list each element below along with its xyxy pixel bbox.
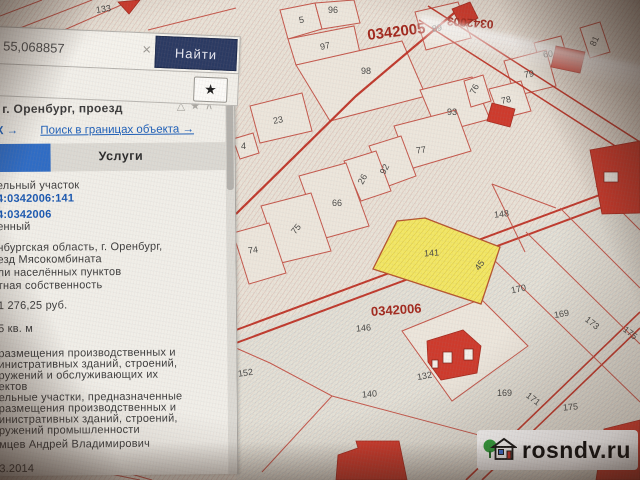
parcel-label: 152 (237, 367, 253, 379)
field-engineer-name: мцев Андрей Владимирович (0, 438, 150, 451)
link-back[interactable]: К → (0, 125, 18, 137)
link-search-in-bounds[interactable]: Поиск в границах объекта → (40, 123, 194, 136)
parcel-label: 78 (500, 94, 512, 106)
parcel-label: 79 (523, 68, 535, 80)
parcel-label: 169 (497, 388, 512, 398)
parcel-label: 140 (362, 388, 378, 399)
search-area: × Найти ★ (0, 26, 241, 106)
panel-address-header: г. Оренбург, проезд (2, 101, 123, 116)
search-input[interactable] (1, 33, 126, 62)
field-ownership: тная собственность (0, 279, 102, 292)
parcel-label: 148 (494, 208, 510, 220)
parcel-label: 66 (332, 198, 342, 208)
parcel-label: 133 (95, 3, 111, 15)
field-date: 3.2014 (0, 463, 34, 475)
parcel-label: 98 (361, 66, 371, 76)
quarter-number-link[interactable]: 4:0342006 (0, 209, 52, 221)
parcel-label: 23 (272, 114, 284, 126)
panel-scrollbar[interactable] (225, 90, 237, 474)
field-address-1: нбургская область, г. Оренбург, (0, 241, 162, 254)
cadastral-number-link[interactable]: 4:0342006:141 (0, 192, 74, 205)
field-address-2: езд Мясокомбината (0, 253, 102, 266)
panel-tab-bar: Услуги (0, 142, 235, 172)
tab-services[interactable]: Услуги (99, 149, 144, 163)
parcel-label: 141 (424, 247, 440, 258)
parcel-label: 146 (356, 322, 372, 333)
parcel-info-panel: г. Оренбург, проезд △★∧ К → Поиск в гран… (0, 90, 238, 476)
parcel-label: 97 (319, 40, 331, 52)
field-object-type: ельный участок (0, 179, 79, 192)
cadastral-map-app: 0342005 0342003 0342006 133 96 5 97 98 8… (0, 0, 640, 480)
tab-info-selected[interactable] (0, 144, 51, 172)
scrollbar-thumb[interactable] (226, 95, 234, 190)
favorites-star-button[interactable]: ★ (193, 76, 228, 102)
clear-search-icon[interactable]: × (142, 41, 151, 58)
house-tree-icon (483, 435, 517, 465)
parcel-label: 77 (415, 144, 426, 155)
parcel-label: 4 (241, 141, 246, 151)
field-status: енный (0, 221, 31, 233)
watermark: rosndv.ru (477, 430, 638, 470)
field-land-category: ли населённых пунктов (0, 266, 121, 279)
field-area: 5 кв. м (0, 323, 33, 335)
field-use-by-doc-4: ружений промышленности (0, 424, 140, 437)
parcel-label: 74 (247, 244, 258, 255)
parcel-label: 93 (447, 107, 457, 117)
parcel-label: 96 (328, 5, 338, 15)
watermark-text: rosndv.ru (522, 437, 631, 464)
parcel-label: 175 (563, 401, 579, 412)
find-button[interactable]: Найти (154, 36, 237, 71)
field-cadastral-value: 1 276,25 руб. (0, 299, 67, 312)
